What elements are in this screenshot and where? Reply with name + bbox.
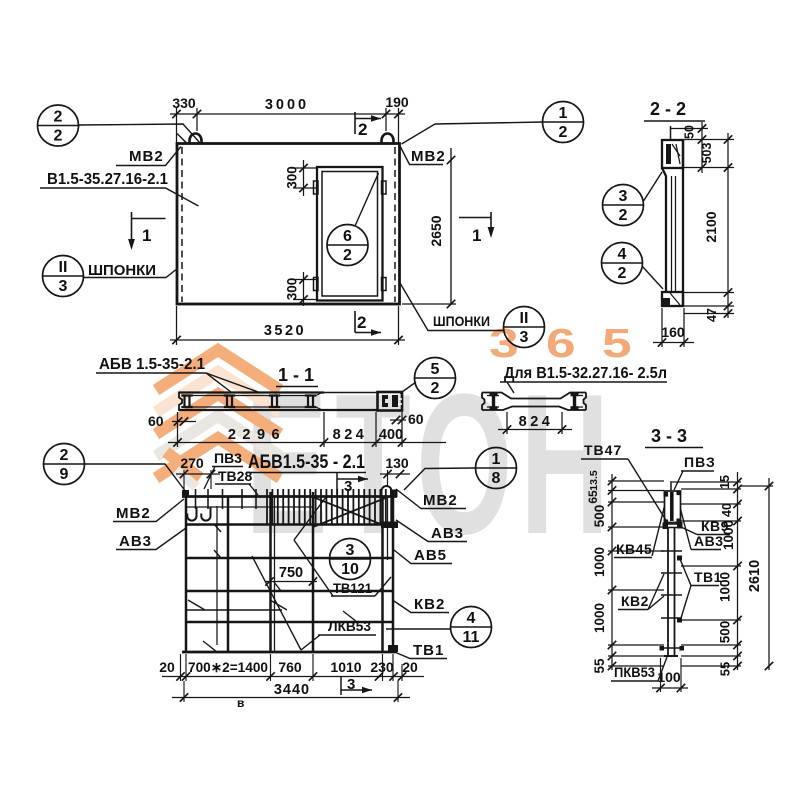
svg-text:3: 3 — [619, 188, 628, 205]
svg-text:ТВ121: ТВ121 — [333, 581, 372, 596]
svg-text:160: 160 — [661, 324, 685, 340]
svg-text:2 - 2: 2 - 2 — [650, 99, 686, 119]
svg-text:1: 1 — [492, 451, 501, 468]
svg-text:ШПОНКИ: ШПОНКИ — [88, 263, 156, 279]
svg-text:2: 2 — [559, 124, 568, 141]
svg-text:ПКВ53: ПКВ53 — [614, 665, 655, 680]
svg-text:6: 6 — [343, 228, 352, 245]
svg-text:ЛКВ53: ЛКВ53 — [328, 619, 371, 634]
svg-text:II: II — [59, 259, 68, 276]
svg-text:270: 270 — [180, 455, 204, 471]
svg-text:6: 6 — [546, 321, 576, 367]
svg-text:65: 65 — [586, 490, 600, 504]
svg-text:ТВ1: ТВ1 — [694, 569, 722, 585]
svg-text:4: 4 — [618, 246, 627, 263]
svg-text:15: 15 — [718, 475, 732, 489]
svg-text:1: 1 — [559, 105, 568, 122]
svg-text:40: 40 — [720, 503, 734, 517]
svg-text:2: 2 — [54, 128, 63, 145]
svg-text:2100: 2100 — [703, 211, 719, 242]
svg-text:в: в — [237, 696, 244, 710]
svg-text:190: 190 — [385, 94, 409, 110]
svg-text:2: 2 — [60, 447, 69, 464]
svg-text:500: 500 — [592, 505, 607, 528]
svg-text:2: 2 — [54, 109, 63, 126]
svg-text:2: 2 — [619, 207, 628, 224]
svg-text:КВ9: КВ9 — [701, 518, 729, 534]
svg-text:3 - 3: 3 - 3 — [651, 426, 687, 446]
svg-text:11: 11 — [463, 629, 480, 646]
svg-text:ПВЗ: ПВЗ — [684, 454, 716, 470]
svg-text:1: 1 — [472, 226, 481, 245]
svg-text:20: 20 — [402, 659, 418, 675]
svg-text:3: 3 — [59, 278, 68, 295]
svg-text:МВ2: МВ2 — [411, 148, 446, 165]
svg-text:3: 3 — [520, 329, 529, 346]
svg-text:50: 50 — [683, 125, 697, 139]
svg-text:КВ2: КВ2 — [414, 596, 445, 613]
svg-text:8: 8 — [492, 470, 501, 487]
svg-text:5: 5 — [602, 321, 632, 367]
svg-text:АВ3: АВ3 — [431, 525, 464, 542]
svg-text:3520: 3520 — [264, 323, 306, 339]
svg-text:500: 500 — [718, 621, 733, 644]
svg-text:824: 824 — [333, 427, 368, 443]
svg-text:4: 4 — [467, 610, 476, 627]
svg-text:КВ2: КВ2 — [621, 593, 649, 609]
svg-text:АВ3: АВ3 — [119, 533, 152, 550]
svg-text:824: 824 — [519, 414, 554, 430]
svg-text:2: 2 — [618, 265, 627, 282]
svg-text:АВ5: АВ5 — [414, 547, 447, 564]
svg-text:700∗2=1400: 700∗2=1400 — [188, 659, 268, 675]
svg-text:1000: 1000 — [592, 603, 607, 633]
svg-text:II: II — [520, 310, 529, 327]
svg-text:ПВ3: ПВ3 — [214, 450, 242, 466]
svg-text:750: 750 — [279, 565, 303, 581]
svg-text:3: 3 — [347, 676, 355, 693]
svg-text:20: 20 — [159, 659, 175, 675]
svg-text:55: 55 — [718, 662, 733, 676]
svg-text:МВ2: МВ2 — [423, 492, 458, 509]
svg-text:3000: 3000 — [265, 97, 309, 113]
svg-text:МВ2: МВ2 — [116, 505, 151, 522]
svg-text:1010: 1010 — [330, 659, 361, 675]
svg-text:300: 300 — [285, 278, 300, 301]
svg-text:55: 55 — [592, 658, 607, 674]
svg-text:5: 5 — [431, 361, 440, 378]
svg-text:503: 503 — [700, 143, 714, 164]
svg-text:130: 130 — [385, 455, 409, 471]
svg-text:9: 9 — [60, 466, 69, 483]
svg-text:1000: 1000 — [592, 547, 607, 577]
svg-text:ТВ1: ТВ1 — [413, 642, 444, 659]
svg-text:2: 2 — [431, 380, 440, 397]
svg-text:10: 10 — [341, 561, 359, 578]
svg-text:ШПОНКИ: ШПОНКИ — [433, 313, 490, 329]
svg-text:400: 400 — [379, 427, 403, 443]
svg-text:МВ2: МВ2 — [129, 148, 164, 165]
svg-text:2: 2 — [343, 247, 352, 264]
svg-text:2610: 2610 — [747, 560, 763, 592]
svg-text:760: 760 — [278, 659, 302, 675]
svg-text:Для В1.5-32.27.16- 2.5л: Для В1.5-32.27.16- 2.5л — [504, 365, 667, 382]
svg-text:13.5: 13.5 — [588, 470, 600, 491]
svg-text:60: 60 — [408, 411, 424, 427]
svg-text:ТВ47: ТВ47 — [584, 442, 622, 458]
svg-text:АВ3: АВ3 — [694, 533, 724, 549]
svg-text:2: 2 — [357, 313, 366, 332]
svg-text:3: 3 — [346, 542, 355, 559]
svg-text:1: 1 — [142, 226, 151, 245]
svg-text:47: 47 — [705, 308, 719, 322]
svg-text:АБВ 1.5-35-2.1: АБВ 1.5-35-2.1 — [99, 356, 205, 373]
svg-text:КВ45: КВ45 — [616, 541, 652, 557]
svg-text:АБВ1.5-35 - 2.1: АБВ1.5-35 - 2.1 — [248, 452, 365, 473]
svg-text:1 - 1: 1 - 1 — [278, 365, 314, 385]
svg-text:2650: 2650 — [428, 215, 444, 246]
svg-text:3440: 3440 — [274, 682, 310, 698]
svg-text:60: 60 — [148, 413, 164, 429]
svg-text:2296: 2296 — [228, 427, 286, 443]
svg-text:2: 2 — [358, 120, 367, 139]
svg-text:В1.5-35.27.16-2.1: В1.5-35.27.16-2.1 — [47, 171, 168, 188]
svg-text:300: 300 — [285, 166, 300, 189]
svg-text:330: 330 — [172, 95, 196, 111]
